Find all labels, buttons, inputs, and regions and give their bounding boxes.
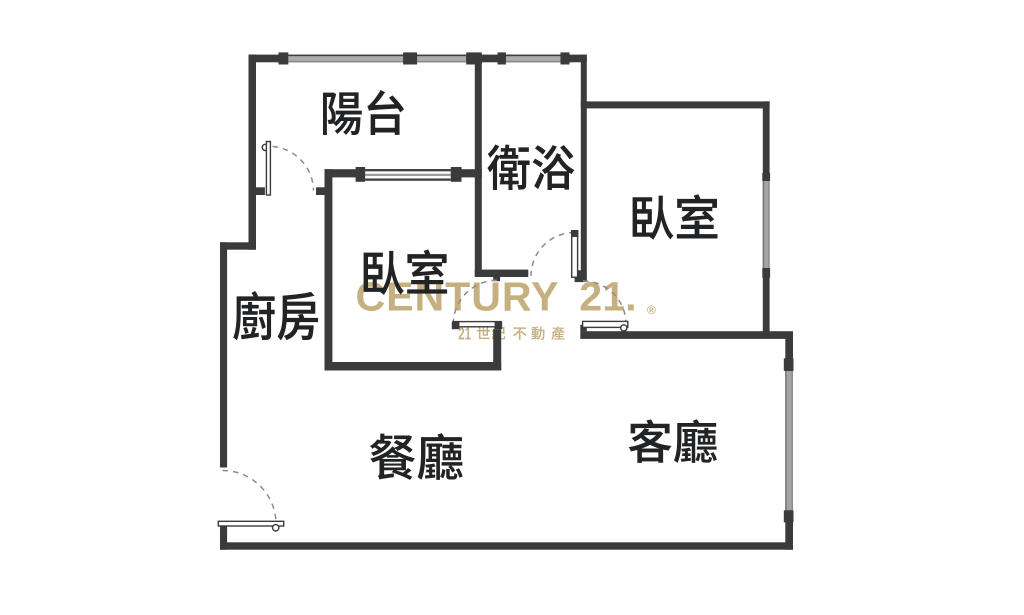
svg-text:®: ® [647, 303, 656, 317]
svg-text:21.: 21. [579, 274, 636, 320]
svg-text:CENTURY: CENTURY [356, 274, 560, 320]
